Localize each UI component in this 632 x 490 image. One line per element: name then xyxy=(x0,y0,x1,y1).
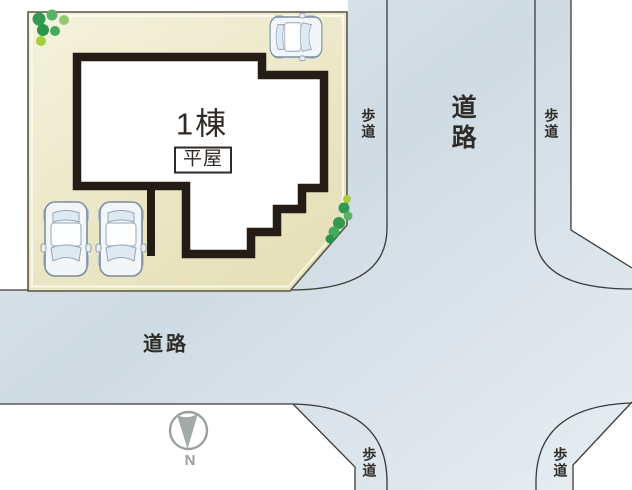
north-arrow-icon xyxy=(170,412,207,449)
building-unit-label: 1棟 xyxy=(176,109,228,142)
car-top-view-icon xyxy=(41,202,91,276)
sidewalk-label-top-right: 歩道 xyxy=(544,108,559,140)
sidewalk-label-bottom-right: 歩道 xyxy=(553,447,568,479)
compass-north-label: N xyxy=(185,453,196,469)
site-plan-canvas xyxy=(0,0,632,490)
horizontal-road-label: 道路 xyxy=(143,335,189,356)
vertical-road-label: 道路 xyxy=(449,94,475,154)
car-top-view-icon xyxy=(96,202,146,276)
car-top-view-icon xyxy=(270,13,322,61)
road-edge-top-right xyxy=(571,0,632,268)
building-story-label: 平屋 xyxy=(174,147,232,174)
sidewalk-label-bottom-left: 歩道 xyxy=(362,447,377,479)
site-plan-diagram: 1棟 平屋 道路 歩道 歩道 歩道 歩道 道路 N xyxy=(0,0,632,490)
sidewalk-label-top-left: 歩道 xyxy=(361,108,376,140)
